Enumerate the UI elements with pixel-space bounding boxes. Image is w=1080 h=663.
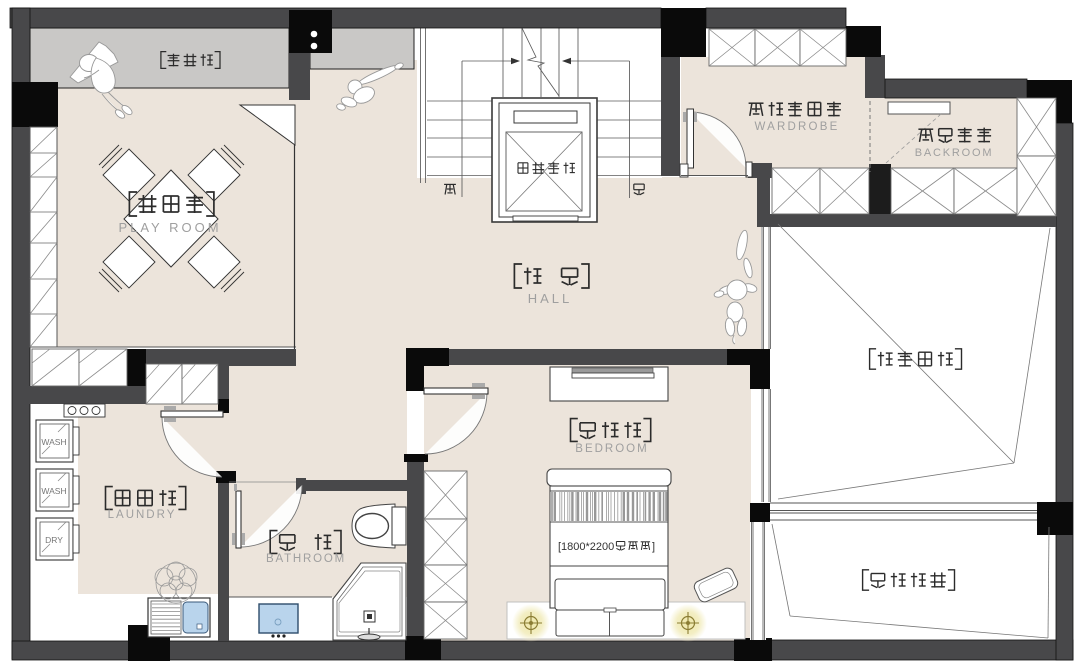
svg-text:BATHROOM: BATHROOM — [266, 553, 346, 565]
svg-text:PLAY ROOM: PLAY ROOM — [118, 220, 221, 235]
svg-text:[1800*2200: [1800*2200 — [558, 541, 614, 553]
svg-text:LAUNDRY: LAUNDRY — [108, 509, 177, 521]
svg-text:WASH: WASH — [41, 486, 66, 496]
svg-text:BACKROOM: BACKROOM — [915, 147, 994, 159]
svg-text:BEDROOM: BEDROOM — [575, 443, 648, 455]
svg-text:DRY: DRY — [45, 535, 63, 545]
svg-text:WASH: WASH — [41, 437, 66, 447]
svg-text:HALL: HALL — [528, 291, 573, 306]
svg-text:]: ] — [652, 541, 655, 553]
svg-text:WARDROBE: WARDROBE — [755, 121, 840, 133]
